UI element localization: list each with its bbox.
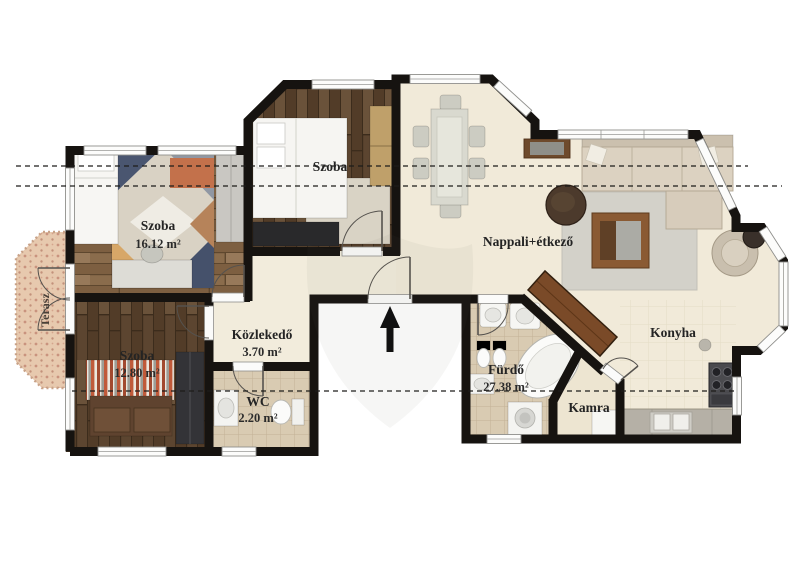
area-label-wc: 2.20 m²: [238, 411, 277, 425]
room-label-bedroom2: Szoba: [313, 159, 348, 174]
bedroom2-furniture: [253, 106, 394, 246]
room-label-bedroom3: Szoba: [120, 348, 155, 363]
floor-plan-page: Szoba 16.12 m² Szoba Szoba 12.80 m² Közl…: [0, 0, 800, 565]
terrace-door-sill: [66, 264, 75, 334]
area-label-hallway: 3.70 m²: [242, 345, 281, 359]
room-label-terrace: Terasz: [38, 293, 52, 327]
bedroom1-door: [212, 293, 244, 302]
area-label-bedroom1: 16.12 m²: [135, 237, 181, 251]
room-label-pantry: Kamra: [568, 400, 609, 415]
dresser: [253, 222, 339, 246]
room-label-bedroom1: Szoba: [141, 218, 176, 233]
room-label-bathroom: Fürdő: [488, 362, 524, 377]
bedroom3-door: [205, 306, 214, 340]
area-label-bedroom3: 12.80 m²: [114, 366, 160, 380]
floor-plan-svg: Szoba 16.12 m² Szoba Szoba 12.80 m² Közl…: [0, 0, 800, 565]
bathroom-door: [478, 295, 508, 304]
wc-door: [233, 362, 263, 371]
sofa-chaise: [666, 191, 722, 229]
room-label-kitchen: Konyha: [650, 325, 696, 340]
room-label-wc: WC: [246, 394, 269, 409]
desk: [112, 260, 192, 288]
room-label-living: Nappali+étkező: [483, 234, 573, 249]
room-label-hallway: Közlekedő: [232, 327, 293, 342]
area-label-bathroom: 27.38 m²: [483, 380, 529, 394]
